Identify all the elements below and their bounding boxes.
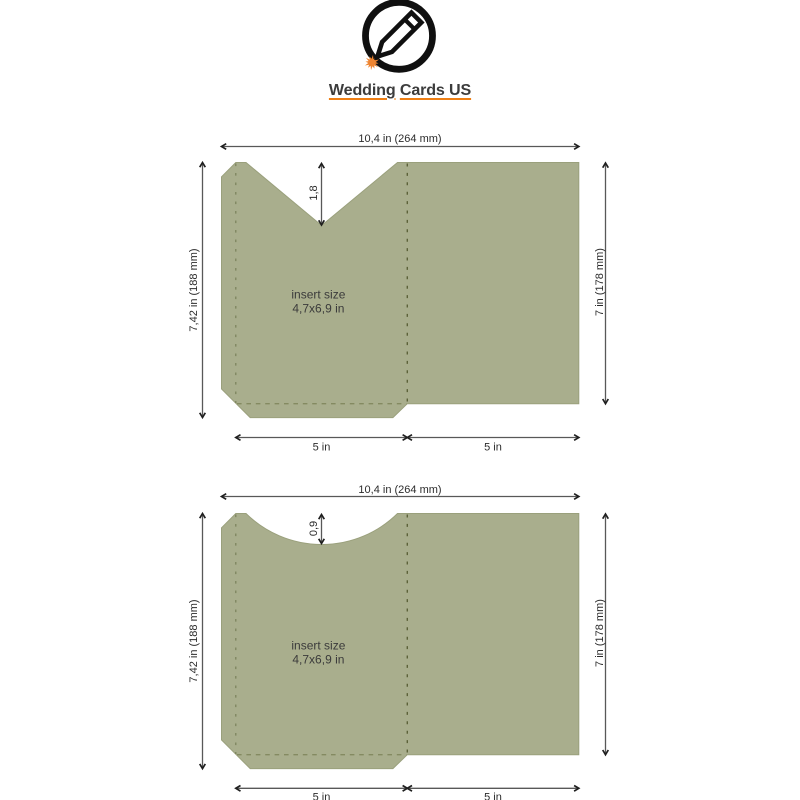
svg-text:0,9: 0,9	[308, 521, 320, 536]
svg-text:insert size: insert size	[291, 638, 345, 652]
svg-text:5 in: 5 in	[313, 442, 331, 454]
svg-text:10,4 in (264 mm): 10,4 in (264 mm)	[358, 484, 441, 496]
svg-text:4,7x6,9 in: 4,7x6,9 in	[292, 653, 344, 667]
svg-text:5 in: 5 in	[484, 792, 502, 800]
svg-text:insert size: insert size	[291, 287, 345, 301]
svg-text:7 in (178 mm): 7 in (178 mm)	[594, 599, 606, 667]
svg-text:10,4 in (264 mm): 10,4 in (264 mm)	[358, 133, 441, 145]
svg-text:5 in: 5 in	[484, 442, 502, 454]
svg-text:7,42 in (188 mm): 7,42 in (188 mm)	[188, 599, 200, 682]
svg-text:1,8: 1,8	[308, 185, 320, 200]
svg-text:5 in: 5 in	[313, 792, 331, 800]
svg-text:7,42 in (188 mm): 7,42 in (188 mm)	[188, 248, 200, 331]
svg-text:4,7x6,9 in: 4,7x6,9 in	[292, 302, 344, 316]
svg-text:7 in (178 mm): 7 in (178 mm)	[594, 248, 606, 316]
